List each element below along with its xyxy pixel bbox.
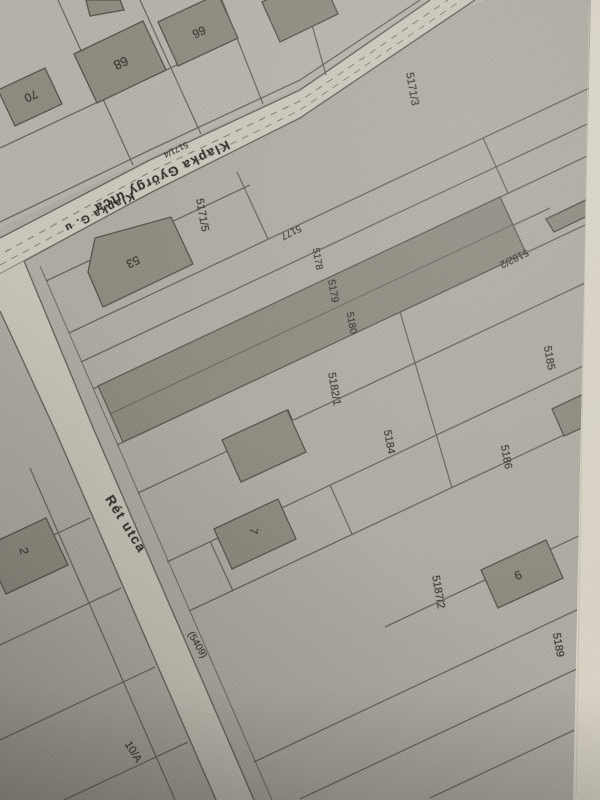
parcel-label-5171-5: 5171/5 bbox=[193, 197, 211, 232]
house-number-53: 53 bbox=[124, 253, 142, 271]
street-label-ret-utca: Rét utca bbox=[102, 492, 149, 555]
house-number-2: 2 bbox=[17, 546, 32, 555]
parcel-label-5189: 5189 bbox=[550, 632, 566, 658]
parcel-label-5185: 5185 bbox=[541, 345, 557, 371]
house-number-9: 9 bbox=[512, 567, 524, 583]
house-number-68: 68 bbox=[111, 53, 130, 73]
house-number-10a: 10/A bbox=[122, 739, 144, 765]
parcel-label-5171-3: 5171/3 bbox=[403, 71, 421, 106]
parcel-label-5187-2: 5187/2 bbox=[429, 574, 447, 609]
map-labels: Klapka György utca Klapka G. u 5171/4 51… bbox=[0, 0, 600, 800]
house-number-70: 70 bbox=[22, 87, 40, 105]
parcel-label-5178: 5178 bbox=[310, 247, 325, 271]
parcel-label-5182-1: 5182/1 bbox=[325, 371, 343, 406]
parcel-label-5180: 5180 bbox=[344, 311, 359, 335]
house-number-7: 7 bbox=[247, 527, 259, 534]
street-parcel-label-5409: (5409) bbox=[185, 630, 209, 661]
parcel-label-5186: 5186 bbox=[498, 444, 514, 470]
street-label-klapka-g-u: Klapka G. u bbox=[62, 190, 136, 235]
parcel-label-5177: 5177 bbox=[279, 222, 303, 241]
parcel-label-5182-2: 5182/2 bbox=[498, 246, 530, 269]
cadastral-map-photo: Klapka György utca Klapka G. u 5171/4 51… bbox=[0, 0, 600, 800]
parcel-label-5184: 5184 bbox=[381, 429, 397, 455]
parcel-label-5179: 5179 bbox=[325, 278, 341, 303]
house-number-66: 66 bbox=[190, 23, 208, 41]
